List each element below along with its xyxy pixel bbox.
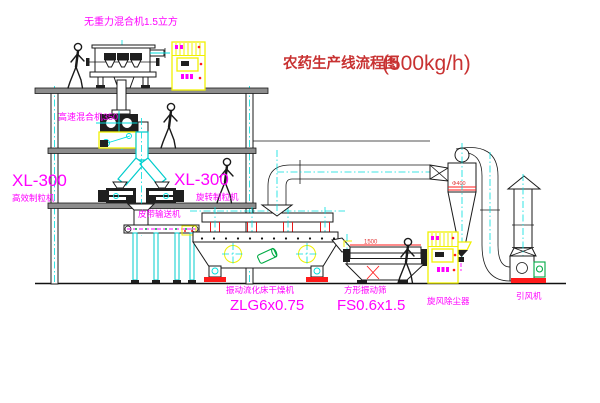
label-dryer-name: 振动流化床干燥机 bbox=[226, 285, 295, 295]
dim-cyclone-dia: Φ400 bbox=[452, 181, 466, 187]
cad-flow-diagram: 农药生产线流程图 (500kg/h) 无重力混合机1.5立方 高速混合机350 … bbox=[0, 0, 600, 403]
control-cabinet-ground bbox=[428, 232, 458, 283]
label-cyclone: 旋风除尘器 bbox=[427, 296, 470, 306]
label-granulator-right-model: XL-300 bbox=[174, 170, 229, 189]
mixer-drop-pipe bbox=[117, 80, 126, 112]
fluid-bed-dryer bbox=[182, 207, 352, 282]
diagram-title-capacity: (500kg/h) bbox=[382, 52, 471, 75]
roof-slab bbox=[35, 88, 268, 94]
label-screen-name: 方形振动筛 bbox=[344, 285, 387, 295]
exhaust-duct bbox=[262, 150, 448, 216]
label-high-speed-mixer: 高速混合机350 bbox=[58, 111, 118, 122]
induced-draft-fan bbox=[510, 256, 546, 283]
label-fan: 引风机 bbox=[516, 291, 542, 301]
dim-screen-length: 1500 bbox=[364, 240, 378, 246]
diagram-canvas: 农药生产线流程图 (500kg/h) 无重力混合机1.5立方 高速混合机350 … bbox=[0, 0, 600, 403]
label-granulator-left-name: 高效制粒机 bbox=[12, 193, 55, 203]
label-granulator-right-name: 旋转制粒机 bbox=[196, 192, 239, 202]
person-figure bbox=[161, 103, 177, 148]
control-cabinet-top bbox=[172, 42, 205, 90]
belt-conveyor bbox=[124, 225, 199, 283]
label-dryer-model: ZLG6x0.75 bbox=[230, 297, 304, 314]
vibrating-screen bbox=[343, 234, 429, 283]
person-figure bbox=[68, 43, 84, 88]
label-screen-model: FS0.6x1.5 bbox=[337, 297, 405, 314]
label-belt-conveyor: 皮带输送机 bbox=[138, 209, 181, 219]
label-granulator-left-model: XL-300 bbox=[12, 171, 67, 190]
second-floor-slab bbox=[48, 148, 256, 154]
granulator-left bbox=[98, 182, 136, 203]
label-gravity-mixer: 无重力混合机1.5立方 bbox=[84, 15, 178, 28]
feeder-valves bbox=[104, 53, 142, 67]
